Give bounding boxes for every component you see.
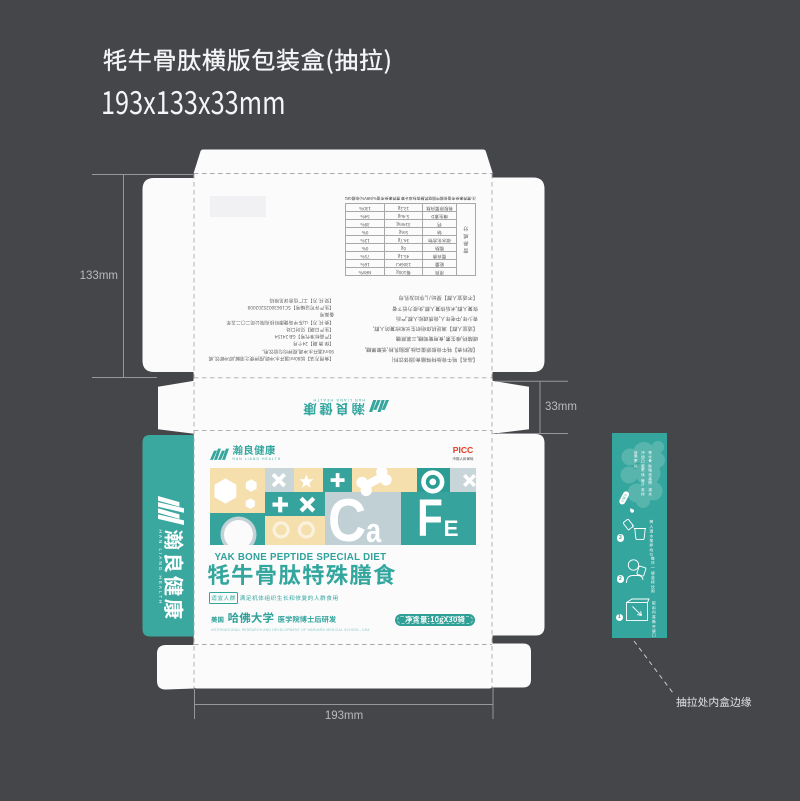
svg-text:E: E	[444, 516, 459, 541]
svg-text:a: a	[366, 511, 382, 545]
svg-text:C: C	[328, 487, 366, 545]
svg-text:F: F	[417, 490, 443, 545]
